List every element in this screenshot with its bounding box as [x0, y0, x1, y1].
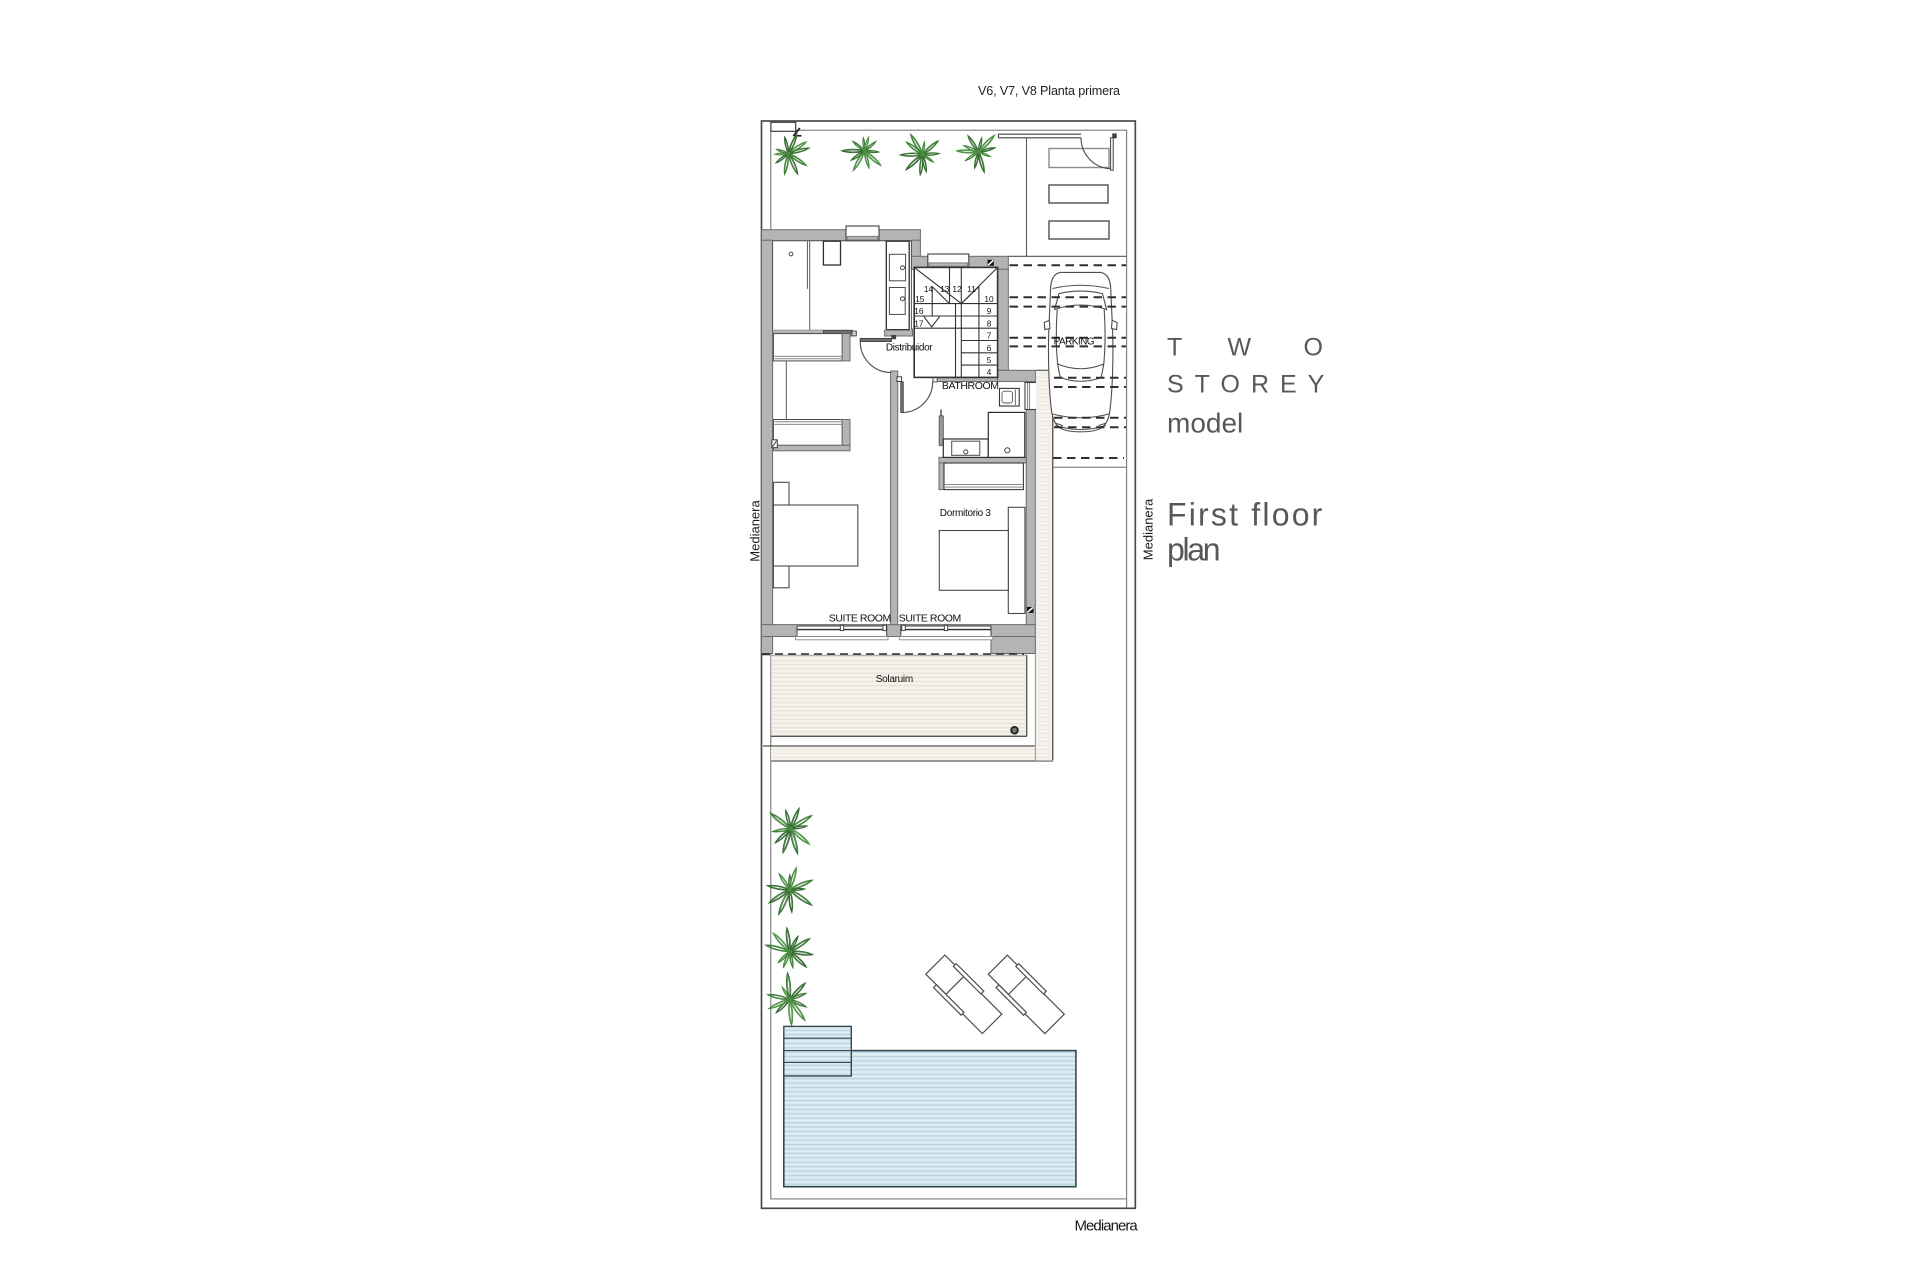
- svg-text:4: 4: [987, 367, 992, 377]
- svg-text:Solaruim: Solaruim: [876, 674, 913, 685]
- svg-text:16: 16: [914, 306, 924, 316]
- svg-text:STOREY: STOREY: [1167, 371, 1335, 399]
- svg-text:Distribuidor: Distribuidor: [886, 343, 933, 354]
- svg-text:PARKING: PARKING: [1054, 337, 1095, 348]
- svg-text:BATHROOM: BATHROOM: [942, 380, 999, 392]
- svg-text:Medianera: Medianera: [747, 500, 762, 562]
- svg-text:model: model: [1167, 408, 1243, 439]
- svg-text:First floor: First floor: [1167, 496, 1325, 532]
- svg-text:10: 10: [984, 294, 994, 304]
- svg-text:Dormitorio 3: Dormitorio 3: [940, 508, 992, 519]
- svg-text:9: 9: [987, 306, 992, 316]
- svg-text:13: 13: [940, 284, 950, 294]
- svg-text:5: 5: [987, 355, 992, 365]
- svg-text:Medianera: Medianera: [1075, 1218, 1139, 1235]
- svg-text:SUITE ROOM: SUITE ROOM: [829, 613, 891, 625]
- svg-text:12: 12: [952, 284, 962, 294]
- svg-text:6: 6: [987, 343, 992, 353]
- svg-text:17: 17: [914, 318, 924, 328]
- svg-text:plan: plan: [1167, 532, 1219, 568]
- svg-text:V6, V7, V8 Planta primera: V6, V7, V8 Planta primera: [978, 84, 1120, 98]
- svg-text:11: 11: [967, 284, 976, 294]
- svg-text:14: 14: [924, 284, 934, 294]
- svg-text:15: 15: [915, 294, 925, 304]
- svg-text:7: 7: [987, 331, 992, 341]
- svg-text:SUITE ROOM: SUITE ROOM: [899, 613, 961, 625]
- svg-text:8: 8: [987, 318, 992, 328]
- svg-text:Medianera: Medianera: [1141, 498, 1156, 560]
